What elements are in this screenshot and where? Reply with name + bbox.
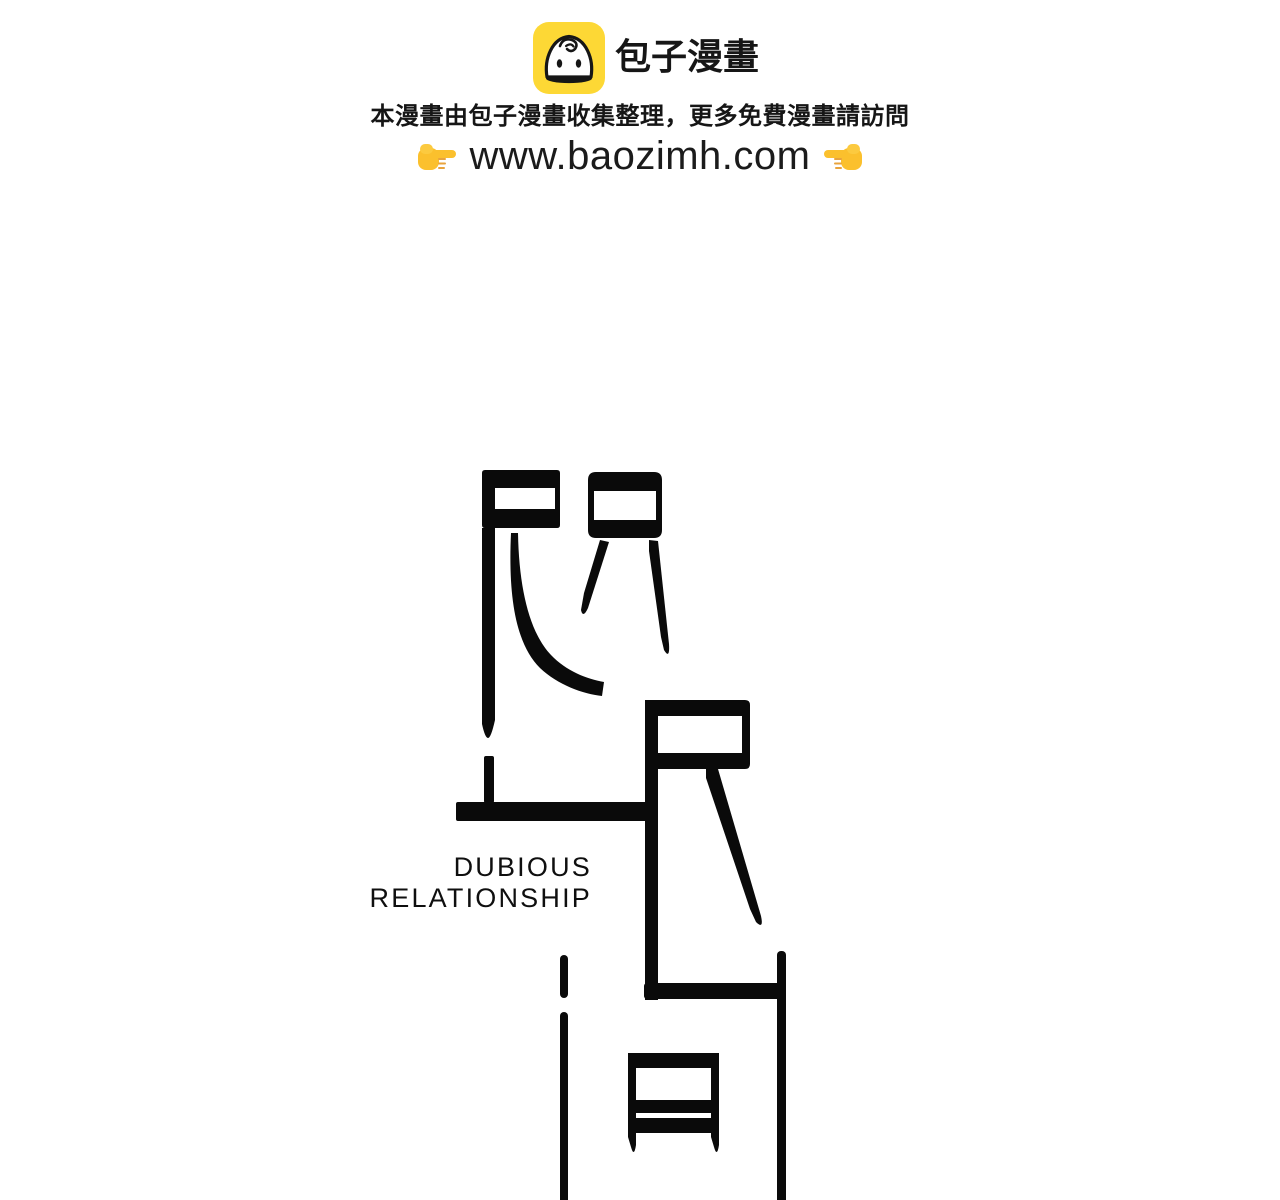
english-title: DUBIOUS RELATIONSHIP (270, 852, 592, 914)
collection-notice: 本漫畫由包子漫畫收集整理，更多免費漫畫請訪問 (0, 96, 1280, 131)
pointing-right-icon (416, 139, 458, 175)
baozi-logo-icon (533, 22, 605, 94)
url-row: www.baozimh.com (0, 134, 1280, 179)
logo-row: 包子漫畫 (533, 22, 759, 94)
title-calligraphy (0, 0, 1280, 1200)
site-title: 包子漫畫 (615, 22, 759, 94)
page: 包子漫畫 本漫畫由包子漫畫收集整理，更多免費漫畫請訪問 www.baozimh.… (0, 0, 1280, 1200)
english-title-line2: RELATIONSHIP (270, 883, 592, 914)
pointing-left-icon (822, 139, 864, 175)
site-url[interactable]: www.baozimh.com (470, 134, 811, 179)
english-title-line1: DUBIOUS (270, 852, 592, 883)
